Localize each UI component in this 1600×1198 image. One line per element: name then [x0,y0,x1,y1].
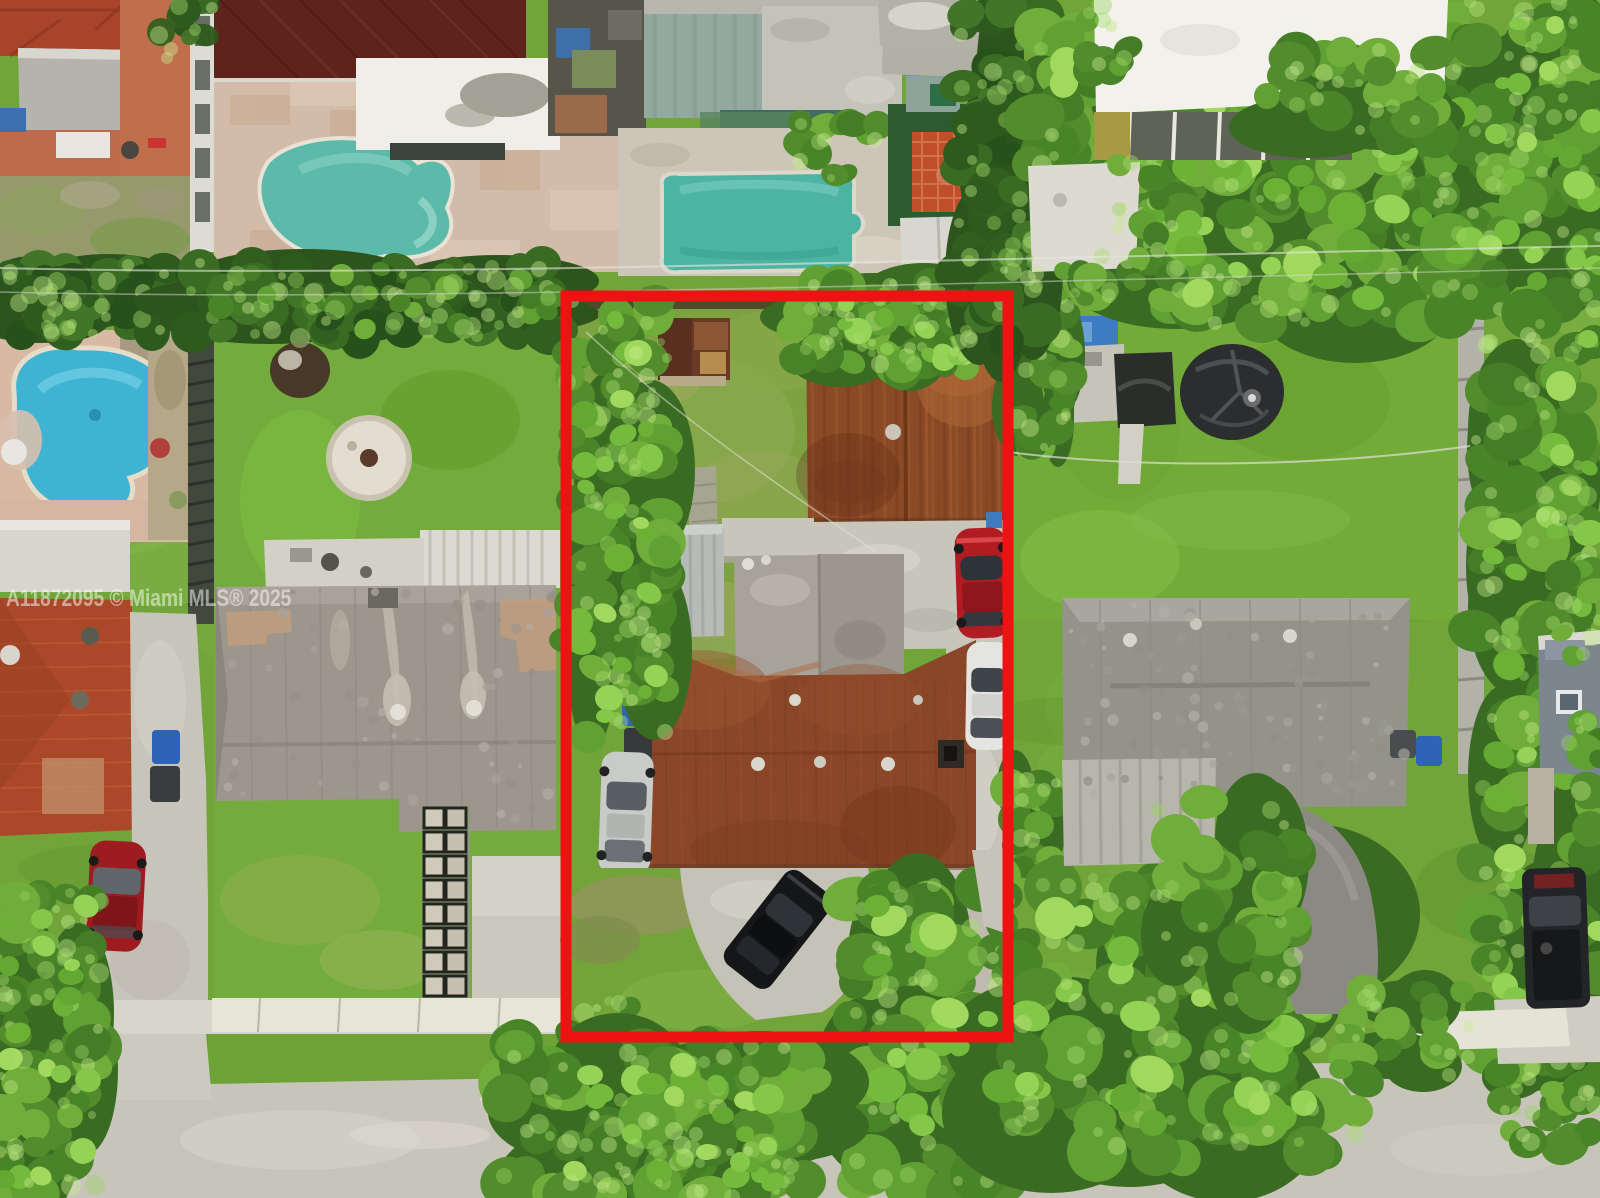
svg-text:A11872095 © Miami MLS® 2025: A11872095 © Miami MLS® 2025 [6,584,291,612]
